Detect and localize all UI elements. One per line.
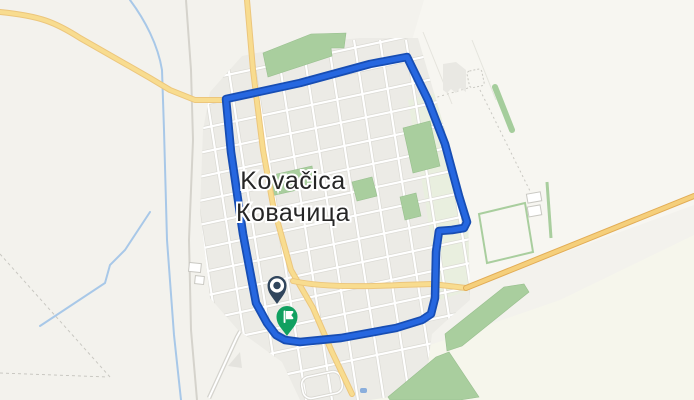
parking-icon [360,388,367,393]
map-canvas[interactable]: Kovačica Ковачица [0,0,694,400]
place-label-latin: Kovačica [240,167,345,195]
place-label-cyrillic: Ковачица [236,199,350,227]
